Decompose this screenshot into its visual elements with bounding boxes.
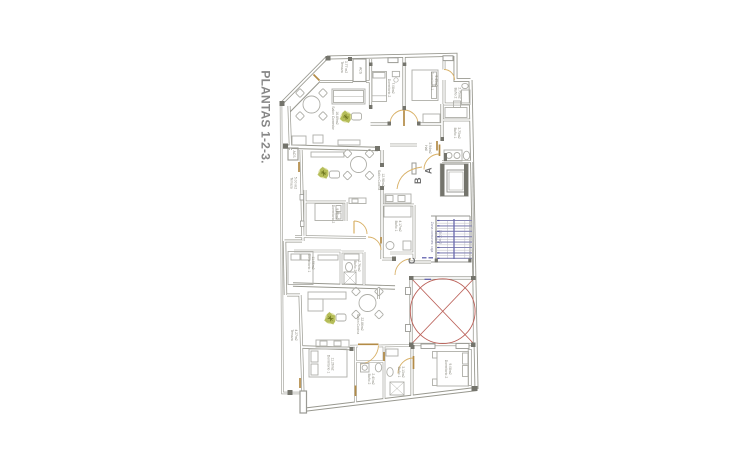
svg-text:2.75m2: 2.75m2 [458,87,462,98]
svg-text:3.94m2: 3.94m2 [428,142,432,153]
svg-text:B: B [413,177,423,184]
svg-text:5.00 m2: 5.00 m2 [293,177,297,189]
svg-text:Baño 2: Baño 2 [454,88,458,99]
svg-text:22.86m2: 22.86m2 [360,317,364,330]
svg-text:ACS: ACS [359,67,363,75]
svg-text:Terraza: Terraza [340,61,344,72]
svg-text:4.17m2: 4.17m2 [398,220,402,231]
svg-text:3.73m2: 3.73m2 [457,127,461,138]
svg-text:Salón Cocina: Salón Cocina [356,314,360,334]
svg-text:Dormitorio 1: Dormitorio 1 [307,254,311,273]
svg-text:C: C [407,257,417,264]
svg-text:4.27m2: 4.27m2 [294,329,298,340]
svg-text:Dormitorio 2: Dormitorio 2 [331,205,335,224]
svg-text:7.08m2: 7.08m2 [391,82,395,93]
svg-text:Baño 1: Baño 1 [397,367,401,378]
svg-text:Hall: Hall [424,145,428,151]
svg-text:escalera: escalera [434,231,438,244]
svg-text:Dormitorio 1: Dormitorio 1 [327,355,331,374]
svg-text:3.77 m2: 3.77 m2 [344,61,348,73]
svg-text:ACS: ACS [292,151,296,159]
svg-text:Baño 1: Baño 1 [394,221,398,232]
svg-text:12.98m2: 12.98m2 [381,173,385,186]
svg-text:3.13m2: 3.13m2 [401,366,405,377]
svg-text:Zona comunes: caja: Zona comunes: caja [430,222,434,253]
svg-text:2.76m2: 2.76m2 [357,260,361,271]
svg-text:Baño 1: Baño 1 [453,128,457,139]
svg-text:Baño 2: Baño 2 [353,261,357,272]
svg-text:11.26m2: 11.26m2 [331,358,335,371]
svg-text:16.89m2: 16.89m2 [335,111,339,124]
svg-text:Terraza: Terraza [289,177,293,188]
svg-text:15.00 m2: 15.00 m2 [438,230,442,244]
svg-text:Salón Cocina: Salón Cocina [377,170,381,190]
svg-text:11.56m2: 11.56m2 [311,257,315,270]
svg-text:2.40m2: 2.40m2 [371,373,375,384]
svg-text:A: A [424,167,434,174]
svg-text:9.08m2: 9.08m2 [448,363,452,374]
svg-text:Dormitorio 2: Dormitorio 2 [444,360,448,379]
svg-text:Dormitorio 1: Dormitorio 1 [430,72,434,91]
svg-text:9.43m2: 9.43m2 [434,75,438,86]
svg-text:Baño 2: Baño 2 [367,374,371,385]
svg-text:Salon Comedor: Salon Comedor [331,106,335,130]
svg-text:Dormitorio 2: Dormitorio 2 [387,79,391,98]
svg-text:PLANTAS 1-2-3.: PLANTAS 1-2-3. [259,70,273,163]
svg-text:9.68m2: 9.68m2 [335,208,339,219]
svg-text:Terraza: Terraza [290,329,294,340]
